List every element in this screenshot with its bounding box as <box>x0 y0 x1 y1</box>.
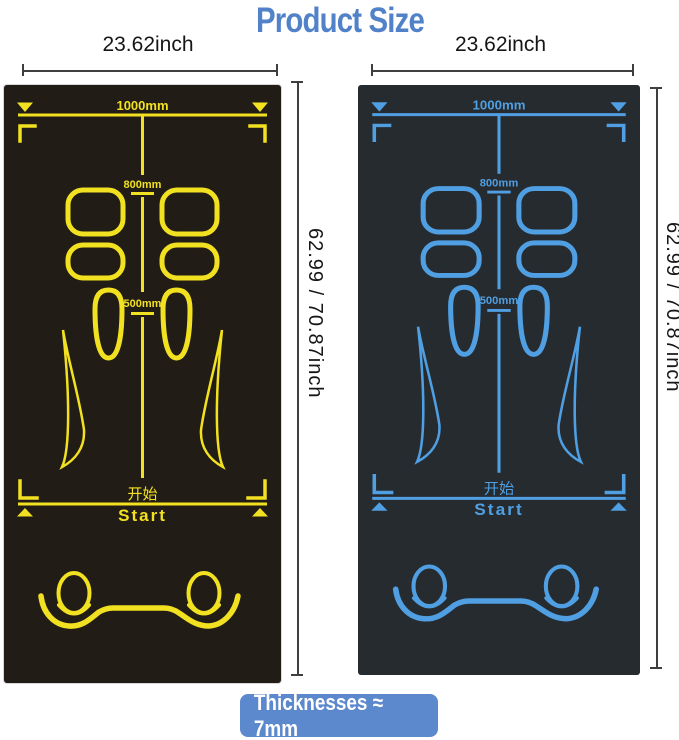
thickness-badge: Thicknesses ≈ 7mm <box>240 694 438 737</box>
arrow-up-right-icon <box>252 508 268 517</box>
ab-pad-mid-left <box>423 243 479 276</box>
ab-pad-mid-right <box>519 243 575 276</box>
thickness-badge-label: Thicknesses ≈ 7mm <box>254 690 424 740</box>
oblique-blade-right <box>558 327 580 462</box>
mat-middle-marking: 800mm <box>480 178 519 190</box>
ab-pad-low-left <box>95 290 122 358</box>
left-mat-width-dimension-line <box>22 64 278 76</box>
mat-lower-marking: 500mm <box>124 298 162 310</box>
right-mat-width-label: 23.62inch <box>371 33 630 57</box>
left-mat-height-dimension-line <box>291 81 303 676</box>
right-mat-height-label: 62.99 / 70.87inch <box>661 222 679 392</box>
arrow-up-right-icon <box>610 502 626 510</box>
mat-start-label-cn: 开始 <box>127 486 157 503</box>
mat-top-marking: 1000mm <box>116 98 168 113</box>
ab-pad-top-left <box>68 190 123 234</box>
corner-bracket-top-right <box>608 125 623 140</box>
right-mat-image: 1000mm 800mm 500mm 开始 Start <box>358 85 640 675</box>
arrow-down-right-icon <box>610 102 626 111</box>
ab-pad-low-right <box>163 290 190 358</box>
ab-pad-top-right <box>519 189 575 232</box>
arrow-down-left-icon <box>371 102 387 111</box>
oblique-blade-left <box>62 330 84 467</box>
left-mat-graphic: 1000mm 800mm 500mm 开始 Start <box>4 85 281 683</box>
corner-bracket-top-right <box>250 126 265 141</box>
dimension-rule <box>291 83 299 674</box>
corner-bracket-bottom-left <box>374 476 391 493</box>
corner-bracket-bottom-right <box>248 481 265 498</box>
arrow-down-right-icon <box>252 103 268 113</box>
oblique-blade-left <box>417 327 439 462</box>
arrow-up-left-icon <box>371 502 387 510</box>
corner-bracket-bottom-left <box>20 481 37 498</box>
mat-lower-marking: 500mm <box>480 295 519 307</box>
corner-bracket-top-left <box>374 125 389 140</box>
ab-pad-mid-left <box>68 245 123 278</box>
corner-bracket-top-left <box>20 126 35 141</box>
mat-start-label-cn: 开始 <box>484 481 514 498</box>
ab-pad-low-left <box>451 287 478 354</box>
mat-start-label-en: Start <box>118 506 167 525</box>
ab-pad-top-right <box>162 190 217 234</box>
left-mat-width-label: 23.62inch <box>22 33 274 57</box>
mat-start-label-en: Start <box>474 500 524 519</box>
product-size-infographic: Product Size 23.62inch <box>0 0 679 740</box>
ab-pad-mid-right <box>162 245 217 278</box>
dimension-rule <box>650 89 658 667</box>
left-mat-image: 1000mm 800mm 500mm 开始 Start <box>4 85 281 683</box>
ab-pad-top-left <box>423 189 479 232</box>
mat-top-marking: 1000mm <box>473 98 526 113</box>
dimension-rule <box>24 64 276 72</box>
arrow-up-left-icon <box>17 508 33 517</box>
corner-bracket-bottom-right <box>606 476 623 493</box>
left-mat-height-label: 62.99 / 70.87inch <box>303 228 326 398</box>
right-mat-graphic: 1000mm 800mm 500mm 开始 Start <box>358 85 640 675</box>
arrow-down-left-icon <box>17 103 33 113</box>
dimension-rule <box>373 64 632 72</box>
oblique-blade-right <box>201 330 223 467</box>
right-mat-width-dimension-line <box>371 64 634 76</box>
mat-middle-marking: 800mm <box>124 179 162 191</box>
ab-pad-low-right <box>520 287 547 354</box>
